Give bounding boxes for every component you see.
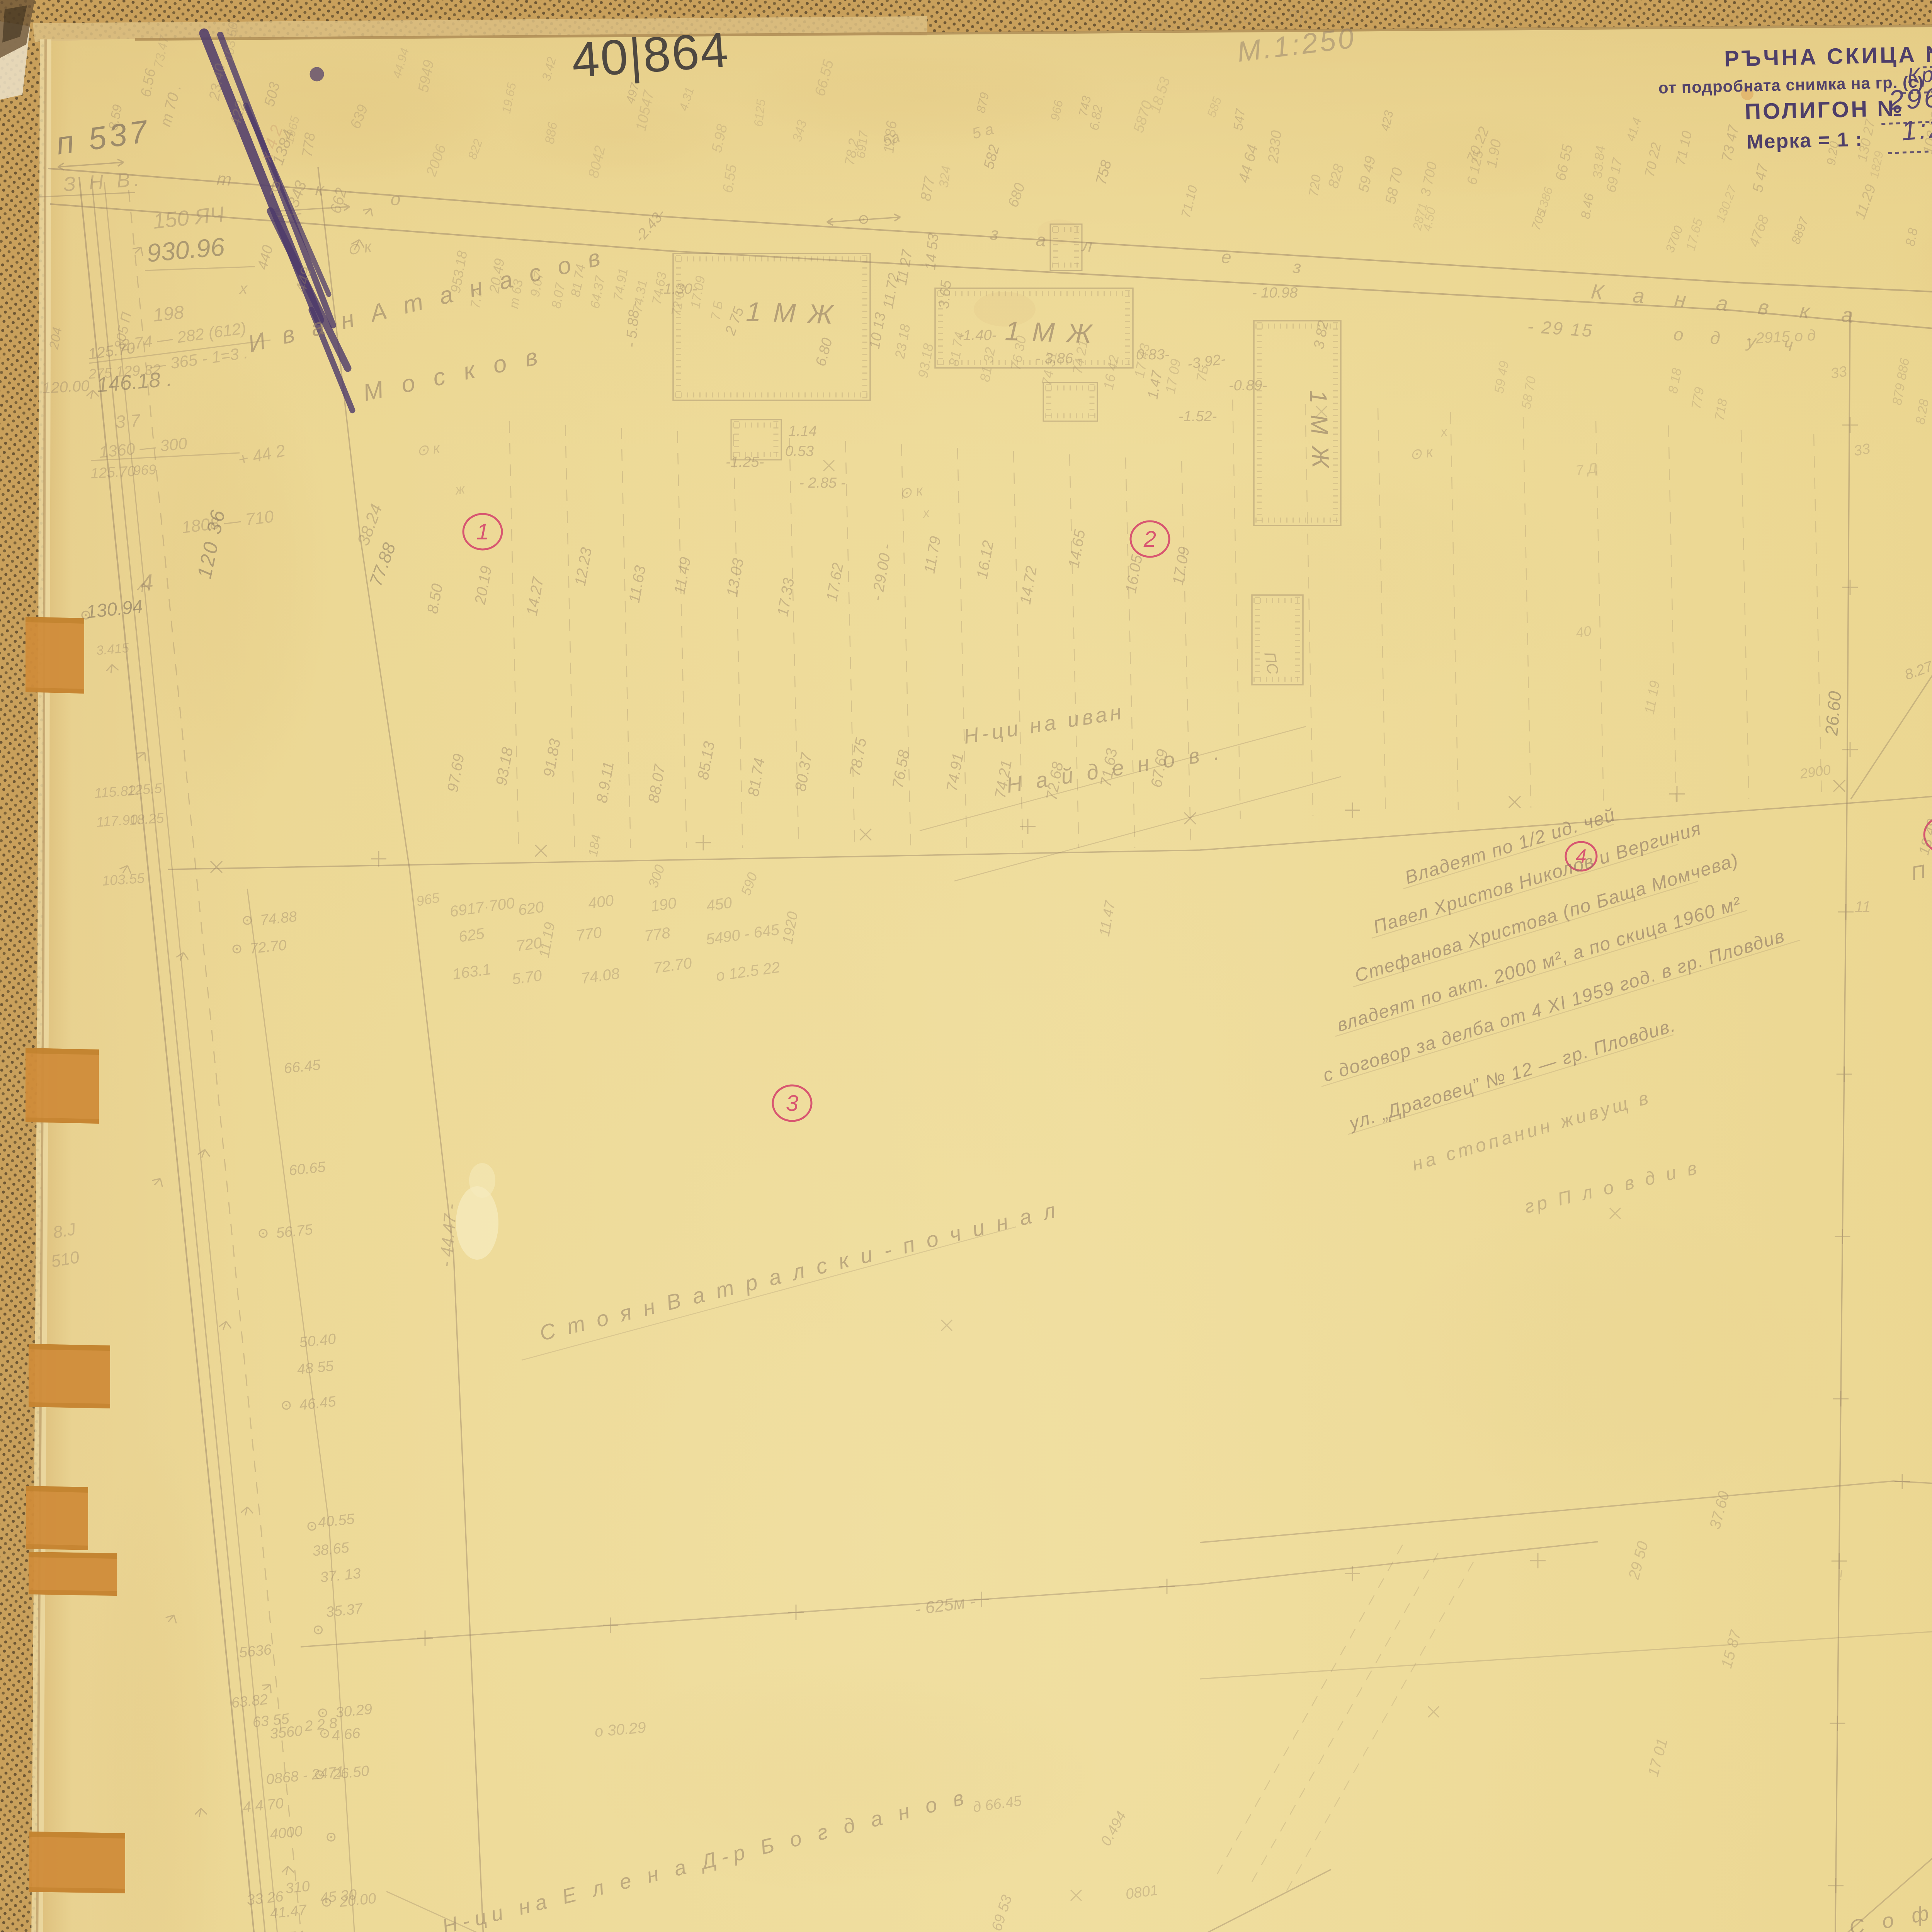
svg-text:д: д (1709, 327, 1721, 348)
svg-text:н: н (1673, 287, 1687, 312)
svg-text:0.53: 0.53 (785, 443, 814, 459)
svg-text:310: 310 (285, 1878, 311, 1897)
svg-text:7 Д: 7 Д (1575, 460, 1598, 478)
svg-text:х: х (239, 280, 248, 297)
svg-text:125.5: 125.5 (127, 780, 163, 798)
svg-text:ПОЛИГОН №: ПОЛИГОН № (1745, 95, 1905, 124)
svg-text:450: 450 (705, 894, 733, 915)
svg-text:547: 547 (1231, 107, 1248, 131)
svg-text:3.65: 3.65 (936, 279, 954, 310)
svg-text:о: о (1673, 324, 1684, 345)
svg-text:- 2.85 -: - 2.85 - (799, 475, 845, 491)
svg-text:33: 33 (1829, 363, 1848, 382)
svg-text:11: 11 (1855, 898, 1871, 915)
svg-text:- 2915 о д: - 2915 о д (1746, 327, 1816, 347)
svg-text:18.25: 18.25 (129, 810, 165, 828)
svg-text:1: 1 (476, 519, 489, 544)
svg-text:778: 778 (299, 132, 318, 158)
svg-text:3.415: 3.415 (95, 641, 129, 658)
svg-text:а: а (1632, 284, 1646, 308)
svg-text:720: 720 (515, 934, 543, 955)
svg-text:8.J: 8.J (51, 1219, 77, 1242)
svg-text:⊙ к: ⊙ к (898, 483, 925, 502)
svg-text:1.14: 1.14 (788, 423, 817, 439)
svg-text:625: 625 (457, 925, 486, 946)
svg-text:⊙ к: ⊙ к (346, 238, 373, 259)
svg-text:198: 198 (152, 302, 185, 326)
svg-text:р: р (269, 175, 281, 196)
svg-text:з: з (989, 223, 999, 244)
svg-text:3: 3 (786, 1091, 798, 1116)
svg-text:103.55: 103.55 (102, 870, 146, 889)
svg-text:190: 190 (650, 895, 677, 915)
svg-text:а: а (1715, 291, 1729, 316)
svg-text:969: 969 (133, 461, 156, 478)
svg-text:26.60: 26.60 (1821, 690, 1845, 737)
svg-text:40: 40 (1575, 623, 1592, 641)
svg-text:4000: 4000 (269, 1823, 303, 1843)
svg-text:400: 400 (587, 892, 615, 912)
svg-text:з: з (1292, 257, 1302, 277)
svg-text:7Б: 7Б (1193, 364, 1212, 383)
svg-text:3 7: 3 7 (115, 410, 141, 432)
svg-text:- 10.98: - 10.98 (1252, 285, 1298, 301)
svg-text:14 53: 14 53 (922, 233, 942, 270)
svg-text:е: е (1221, 247, 1232, 267)
svg-text:РЪЧНА СКИЦА №: РЪЧНА СКИЦА № (1724, 41, 1932, 71)
svg-text:-0.89-: -0.89- (1229, 378, 1267, 394)
svg-text:620: 620 (517, 898, 545, 919)
svg-text:129.32: 129.32 (115, 362, 161, 380)
svg-text:⊙ к: ⊙ к (1408, 444, 1435, 463)
svg-text:120.00: 120.00 (42, 378, 90, 397)
svg-text:296-Ī: 296-Ī (1887, 81, 1932, 116)
svg-text:125.70: 125.70 (90, 463, 136, 482)
svg-text:-1.52-: -1.52- (1179, 408, 1217, 425)
svg-text:о: о (390, 189, 401, 209)
svg-text:1 М Ж: 1 М Ж (1304, 389, 1334, 471)
svg-text:33: 33 (1852, 440, 1871, 459)
svg-text:-1.25-: -1.25- (726, 454, 764, 470)
svg-text:6125: 6125 (751, 99, 768, 128)
svg-text:5636: 5636 (238, 1641, 273, 1661)
svg-text:⊙ к: ⊙ к (415, 440, 442, 459)
svg-text:275: 275 (88, 365, 112, 382)
svg-text:а: а (1035, 230, 1046, 250)
svg-text:770: 770 (575, 924, 603, 944)
svg-text:а: а (1840, 303, 1854, 327)
svg-text:2: 2 (1143, 527, 1156, 552)
svg-text:1 М Ж: 1 М Ж (745, 296, 835, 330)
svg-text:3560: 3560 (269, 1723, 303, 1742)
svg-text:40|864: 40|864 (570, 22, 731, 88)
svg-text:4: 4 (139, 569, 154, 596)
svg-text:778: 778 (643, 924, 672, 945)
svg-text:4 66: 4 66 (331, 1725, 362, 1744)
svg-text:Мерка = 1 :: Мерка = 1 : (1747, 128, 1863, 153)
svg-text:324: 324 (936, 165, 954, 189)
svg-text:т: т (216, 168, 232, 190)
